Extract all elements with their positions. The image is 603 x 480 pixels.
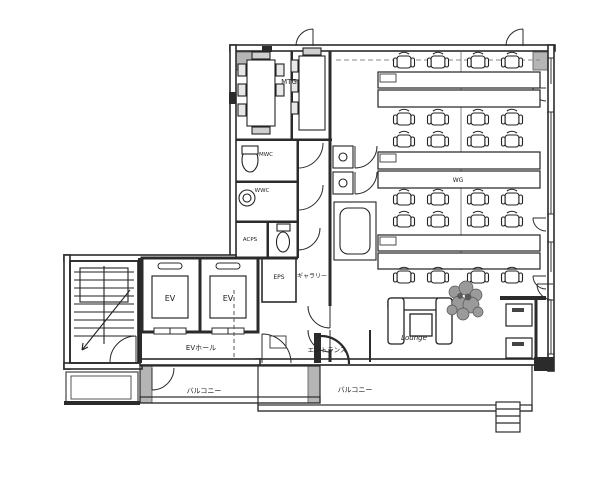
label-wwc: WWC	[255, 188, 270, 194]
meeting-room	[238, 48, 325, 134]
label-acps: ACPS	[243, 237, 258, 243]
label-entrance: エントランス	[308, 346, 347, 354]
lower-terrace	[64, 372, 140, 405]
label-elevator-1: EV	[165, 294, 176, 303]
label-ev-hall: EVホール	[186, 344, 216, 352]
label-mtg: MTG	[281, 78, 297, 86]
label-desk-island: WG	[453, 177, 464, 184]
label-mwc: MWC	[259, 152, 273, 158]
floor-plan-canvas: MTG MWC WWC ACPS EPS ギャラリー EV EV EVホール エ…	[0, 0, 603, 480]
label-balcony-left: バルコニー	[187, 387, 222, 395]
plant	[447, 281, 483, 320]
label-elevator-2: EV	[223, 294, 234, 303]
floor-plan-drawing: MTG MWC WWC ACPS EPS ギャラリー EV EV EVホール エ…	[0, 0, 603, 480]
staircase	[70, 261, 138, 363]
label-eps: EPS	[273, 274, 284, 281]
desk-islands	[378, 72, 540, 269]
elevator-shafts	[142, 258, 258, 334]
label-lounge: Lounge	[401, 334, 427, 342]
label-balcony-right: バルコニー	[338, 386, 373, 394]
exterior-ladder	[496, 402, 520, 432]
label-gallery: ギャラリー	[297, 273, 327, 280]
storage-cabinets	[506, 304, 532, 358]
